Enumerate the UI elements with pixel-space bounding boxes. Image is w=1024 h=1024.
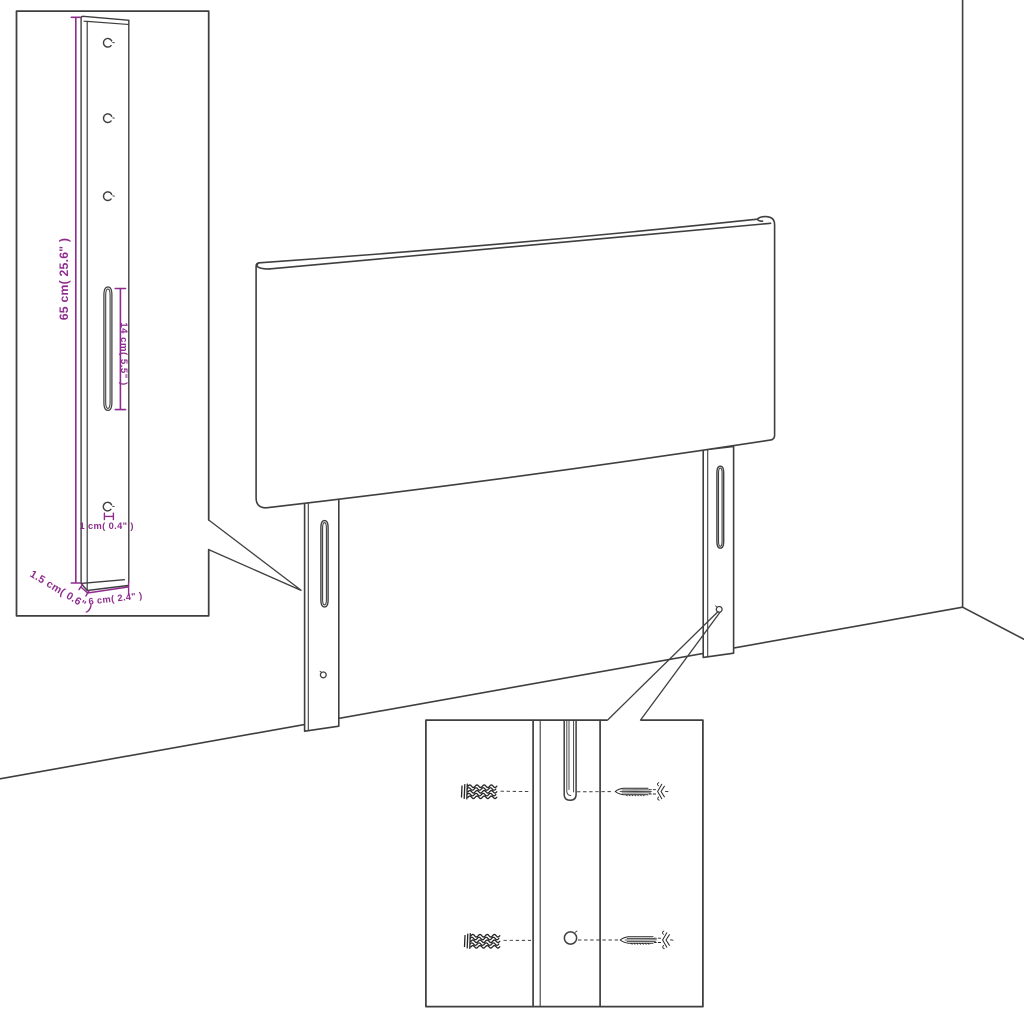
svg-text:14 cm( 5.5" ): 14 cm( 5.5" ) bbox=[118, 322, 129, 385]
svg-text:1 cm( 0.4" ): 1 cm( 0.4" ) bbox=[80, 521, 134, 531]
svg-text:65 cm( 25.6" ): 65 cm( 25.6" ) bbox=[57, 238, 71, 320]
